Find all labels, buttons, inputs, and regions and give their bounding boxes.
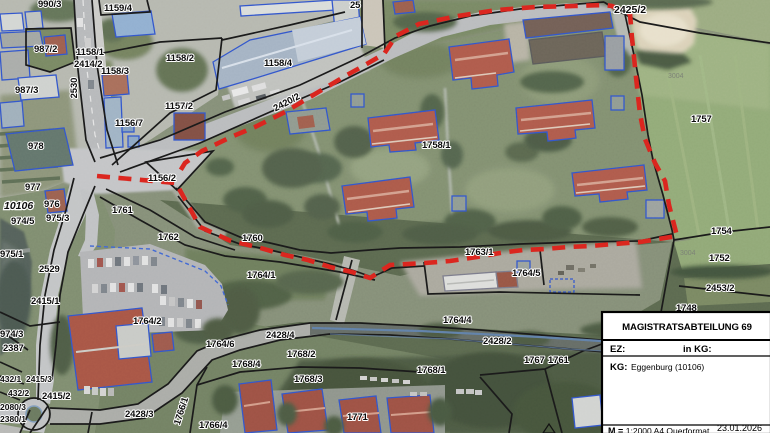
svg-text:2415/2: 2415/2 <box>42 391 70 402</box>
svg-text:1760: 1760 <box>242 233 263 244</box>
svg-text:1764/5: 1764/5 <box>512 268 541 279</box>
svg-text:987/2: 987/2 <box>34 44 57 55</box>
svg-text:10106: 10106 <box>4 200 33 212</box>
svg-text:1764/4: 1764/4 <box>443 315 472 326</box>
svg-text:1768/4: 1768/4 <box>232 359 261 370</box>
svg-text:2415/3: 2415/3 <box>26 374 52 384</box>
svg-text:1752: 1752 <box>709 253 730 264</box>
svg-text:1764/6: 1764/6 <box>206 339 234 350</box>
svg-text:23.01.2026: 23.01.2026 <box>717 423 762 433</box>
svg-text:1158/1: 1158/1 <box>76 47 105 58</box>
svg-text:MAGISTRATSABTEILUNG 69: MAGISTRATSABTEILUNG 69 <box>622 322 752 333</box>
svg-text:974/3: 974/3 <box>0 329 23 340</box>
svg-text:1761: 1761 <box>548 355 570 366</box>
svg-text:2530: 2530 <box>69 78 80 99</box>
svg-text:2428/2: 2428/2 <box>483 336 511 347</box>
svg-text:KG:: KG: <box>610 362 627 373</box>
svg-text:1156/7: 1156/7 <box>115 118 143 129</box>
svg-text:1764/1: 1764/1 <box>247 270 276 281</box>
svg-text:975/3: 975/3 <box>46 213 69 224</box>
svg-text:3004: 3004 <box>668 73 684 80</box>
svg-text:1758/1: 1758/1 <box>422 140 451 151</box>
svg-text:1754: 1754 <box>711 226 733 237</box>
svg-text:1156/2: 1156/2 <box>148 173 176 184</box>
svg-text:975/1: 975/1 <box>0 249 24 260</box>
svg-text:1158/2: 1158/2 <box>166 53 194 64</box>
svg-text:Eggenburg (10106): Eggenburg (10106) <box>631 362 704 372</box>
svg-text:1768/3: 1768/3 <box>294 374 322 385</box>
svg-text:1158/3: 1158/3 <box>101 66 129 77</box>
svg-text:2387: 2387 <box>3 343 24 354</box>
svg-text:1762: 1762 <box>158 232 179 243</box>
svg-text:1768/1: 1768/1 <box>417 365 446 376</box>
svg-text:977: 977 <box>25 182 41 193</box>
svg-text:974/5: 974/5 <box>11 216 35 227</box>
svg-text:2428/4: 2428/4 <box>266 330 295 341</box>
svg-text:1761: 1761 <box>112 205 134 216</box>
svg-text:2415/1: 2415/1 <box>31 296 60 307</box>
svg-text:976: 976 <box>44 199 60 210</box>
svg-text:1771: 1771 <box>347 412 369 423</box>
svg-text:1757: 1757 <box>691 114 712 125</box>
svg-text:1767: 1767 <box>524 355 545 366</box>
svg-text:2453/2: 2453/2 <box>706 283 734 294</box>
svg-text:1157/2: 1157/2 <box>165 101 193 112</box>
svg-text:3004: 3004 <box>680 250 696 257</box>
svg-text:1766/4: 1766/4 <box>199 420 228 431</box>
svg-text:2529: 2529 <box>39 264 60 275</box>
svg-text:1764/2: 1764/2 <box>133 316 161 327</box>
svg-text:1768/2: 1768/2 <box>287 349 315 360</box>
svg-text:987/3: 987/3 <box>15 85 38 96</box>
svg-text:2428/3: 2428/3 <box>125 409 153 420</box>
svg-text:978: 978 <box>28 141 44 152</box>
svg-text:2080/3: 2080/3 <box>0 402 26 412</box>
svg-text:EZ:: EZ: <box>610 344 625 355</box>
svg-text:2425/2: 2425/2 <box>614 4 646 16</box>
svg-text:1158/4: 1158/4 <box>264 58 293 69</box>
svg-text:in KG:: in KG: <box>683 344 712 355</box>
svg-text:M = 1:2000 A4 Querformat: M = 1:2000 A4 Querformat <box>608 426 710 433</box>
svg-text:1159/4: 1159/4 <box>104 3 133 14</box>
svg-text:990/3: 990/3 <box>38 0 61 10</box>
svg-text:432/1: 432/1 <box>0 374 22 384</box>
svg-text:432/2: 432/2 <box>8 388 30 398</box>
svg-text:1763/1: 1763/1 <box>465 247 494 258</box>
svg-text:25: 25 <box>350 0 361 11</box>
svg-text:2380/1: 2380/1 <box>0 414 26 424</box>
svg-text:2414/2: 2414/2 <box>74 59 102 70</box>
